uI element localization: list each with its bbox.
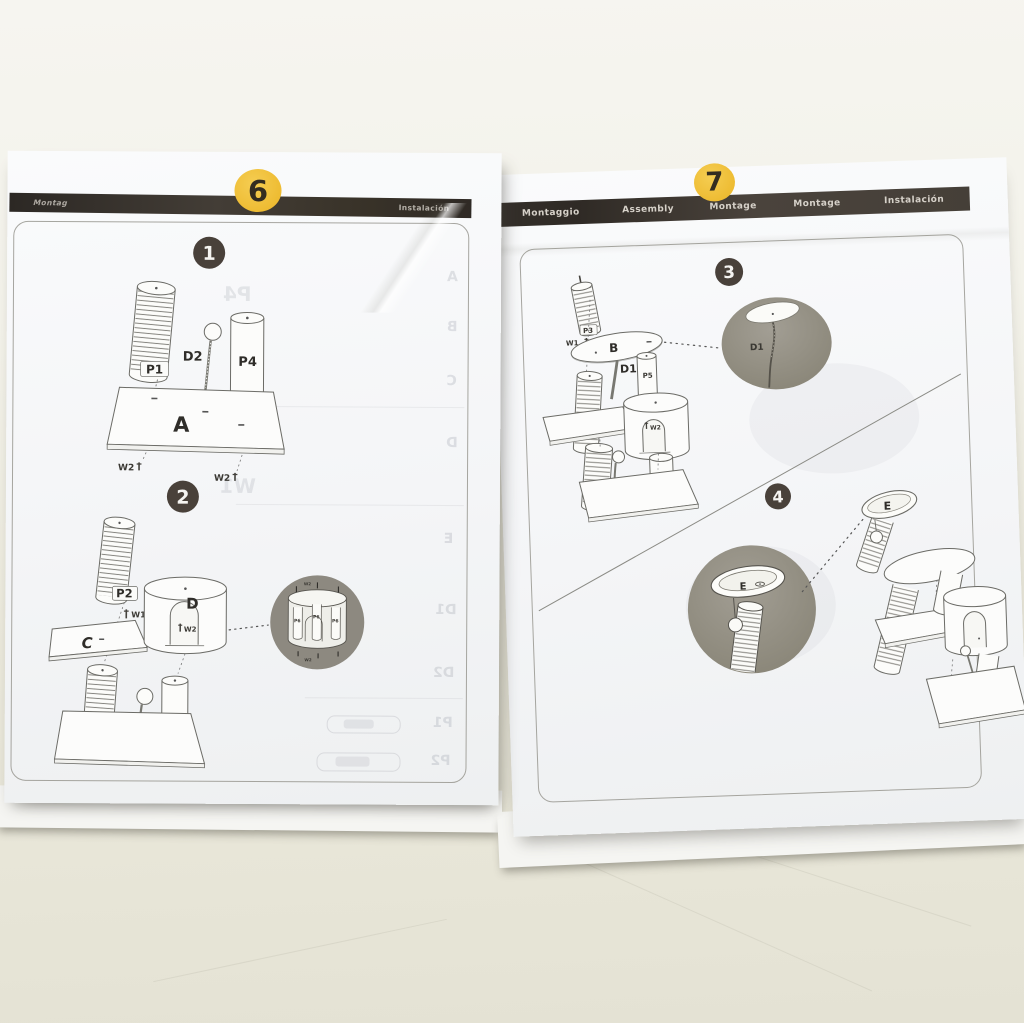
label-w2-inside: W2 bbox=[184, 626, 197, 634]
label-b: B bbox=[609, 341, 619, 355]
label-p5: P5 bbox=[643, 372, 653, 380]
manual-page-6: Montag Instalación 6 A B C D E D1 D2 P1 … bbox=[4, 151, 501, 806]
label-e-main: E bbox=[883, 499, 891, 512]
label-d: D bbox=[186, 595, 199, 613]
label-a: A bbox=[173, 413, 190, 437]
step-number: 1 bbox=[202, 243, 215, 265]
assembled-base-drawing bbox=[54, 663, 205, 767]
page-7-illustrations: 3 P3 W1 bbox=[491, 157, 1024, 837]
spring-mount-detail: D1 bbox=[720, 295, 833, 391]
label-p2: P2 bbox=[116, 586, 133, 600]
spring-toy-drawing bbox=[610, 361, 618, 399]
label-w2: W2 bbox=[118, 463, 134, 473]
shelf-c-drawing bbox=[49, 620, 147, 662]
screw-glyph bbox=[137, 462, 142, 470]
perch-detail: E bbox=[686, 543, 819, 684]
label-p6: P6 bbox=[332, 618, 339, 624]
screw-glyph bbox=[233, 473, 238, 481]
page-number: 7 bbox=[705, 167, 724, 198]
screw-glyph bbox=[124, 609, 129, 618]
label-d2: D2 bbox=[183, 350, 203, 365]
base-board-a-drawing bbox=[107, 387, 284, 454]
label-w2-inside: W2 bbox=[650, 424, 661, 431]
page-6-illustrations: 1 P1 D2 bbox=[4, 151, 501, 806]
condo-interior-detail: P6 P6 P6 W2 W2 bbox=[270, 575, 364, 669]
step-3: 3 P3 W1 bbox=[538, 254, 838, 523]
label-p4: P4 bbox=[238, 355, 257, 370]
tower-lower-assembly: W2 bbox=[542, 367, 699, 524]
label-c: C bbox=[82, 634, 93, 652]
label-w2: W2 bbox=[304, 657, 311, 662]
ball-toy-drawing bbox=[204, 323, 221, 340]
label-w2: W2 bbox=[214, 474, 230, 484]
step-4: 4 bbox=[684, 475, 1024, 737]
photo-scene: Montag Instalación 6 A B C D E D1 D2 P1 … bbox=[0, 0, 1024, 1023]
table-scratch bbox=[153, 919, 447, 982]
step-2: 2 P2 W1 bbox=[48, 480, 364, 769]
step-number: 2 bbox=[176, 487, 189, 509]
tower-top-assembly: E bbox=[853, 482, 1024, 731]
manual-page-7: Montaggio Assembly Montage Montage Insta… bbox=[491, 157, 1024, 837]
label-d1-detail: D1 bbox=[750, 343, 764, 353]
label-p6: P6 bbox=[313, 614, 320, 620]
condo-d-drawing: W2 bbox=[144, 577, 226, 654]
label-p1: P1 bbox=[146, 362, 163, 376]
step-number: 4 bbox=[772, 487, 784, 506]
page-number: 6 bbox=[248, 173, 268, 207]
step-number: 3 bbox=[723, 263, 736, 283]
label-w2: W2 bbox=[304, 581, 311, 586]
page-number-badge: 6 bbox=[234, 169, 281, 212]
label-e-detail: E bbox=[740, 582, 747, 593]
label-d1: D1 bbox=[620, 362, 637, 376]
step-1: 1 P1 D2 bbox=[107, 236, 285, 484]
label-p6: P6 bbox=[294, 618, 301, 624]
